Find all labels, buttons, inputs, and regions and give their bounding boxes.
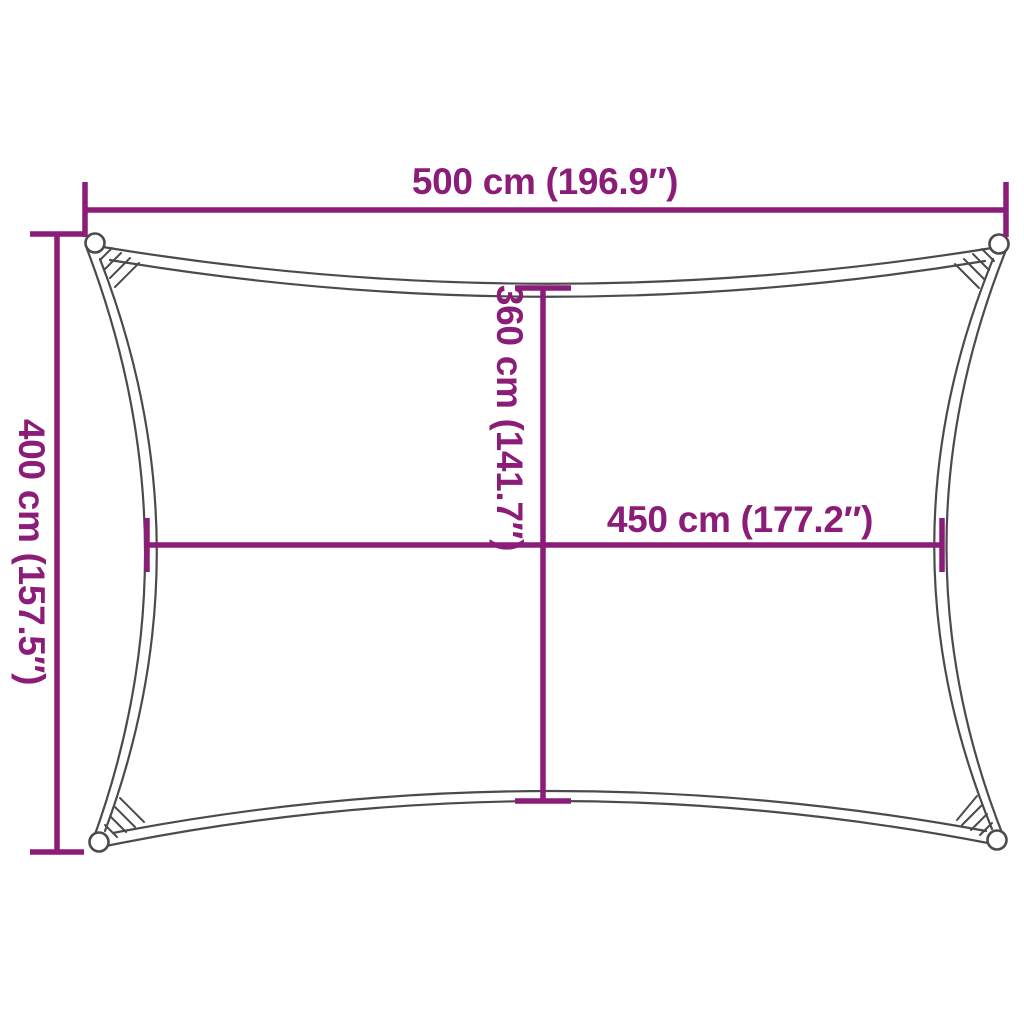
sail-bottom-edge-inner-line: [113, 791, 986, 833]
sail-bottom-edge-outer-line: [106, 801, 993, 846]
corner-ring-bottom-left: [90, 833, 109, 852]
sail-left-edge-outer-line: [87, 249, 145, 840]
dimension-label-inner-width: 450 cm (177.2″): [490, 496, 990, 544]
stitch-line: [957, 796, 977, 820]
stitch-line: [971, 814, 987, 830]
sail-right-edge-outer-line: [946, 250, 1006, 838]
stitch-line: [955, 264, 979, 288]
corner-ring-bottom-right: [988, 831, 1007, 850]
stitch-line: [115, 263, 139, 287]
stitch-line: [120, 798, 144, 822]
corner-ring-top-left: [86, 234, 105, 253]
dimension-label-left-height: 400 cm (157.5″): [7, 392, 55, 712]
product-dimension-diagram: 500 cm (196.9″) 400 cm (157.5″) 360 cm (…: [0, 0, 1024, 1024]
corner-ring-top-right: [990, 235, 1009, 254]
stitch-line: [110, 816, 126, 832]
dimension-label-top-width: 500 cm (196.9″): [295, 158, 795, 206]
